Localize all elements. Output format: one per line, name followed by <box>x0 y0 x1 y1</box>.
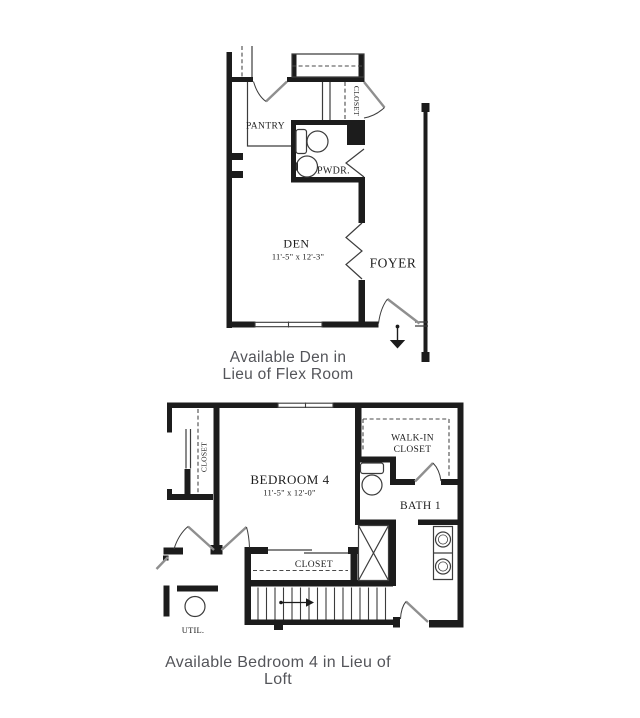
den-plan-caption: Available Den in Lieu of Flex Room <box>214 350 362 383</box>
den-walls <box>227 52 430 362</box>
toilet-icon-bath1 <box>361 463 384 495</box>
den-caption-line2: Lieu of Flex Room <box>214 367 362 384</box>
pantry-label: PANTRY <box>246 122 285 132</box>
den-door-arcs <box>254 82 388 324</box>
den-door-leaves <box>266 82 420 324</box>
bedroom4-plan-caption: Available Bedroom 4 in Lieu of Loft <box>156 654 400 688</box>
walkin-closet-label-line2: CLOSET <box>394 445 432 455</box>
stairs <box>258 588 386 620</box>
den-dimensions: 11'-5" x 12'-3" <box>272 252 324 262</box>
bedroom4-plan: CLOSET BEDROOM 4 11'-5" x 12'-0" WALK-IN… <box>157 403 464 636</box>
water-heater-icon <box>185 597 205 617</box>
den-caption-line1: Available Den in <box>214 350 362 367</box>
utility-label: UTIL. <box>182 625 204 635</box>
closet-bottom-label: CLOSET <box>295 560 333 570</box>
den-dashed-lines <box>242 46 364 120</box>
bedroom4-label: BEDROOM 4 <box>250 472 329 487</box>
bedroom4-window <box>278 403 333 409</box>
foyer-label: FOYER <box>370 256 417 271</box>
den-label: DEN <box>283 237 309 251</box>
den-plan: PANTRY CLOSET PWDR. DEN 11'-5" x 12'-3" … <box>227 46 430 362</box>
bedroom4-closet-left-label: CLOSET <box>200 442 209 472</box>
powder-label: PWDR. <box>317 166 350 177</box>
bath1-label: BATH 1 <box>400 500 441 512</box>
bedroom4-dimensions: 11'-5" x 12'-0" <box>263 488 315 498</box>
den-closet-label: CLOSET <box>352 86 361 116</box>
entry-arrow-icon <box>390 325 405 349</box>
walkin-closet-label-line1: WALK-IN <box>391 434 434 444</box>
den-window <box>255 322 322 328</box>
toilet-icon <box>296 130 328 154</box>
den-thin-lines <box>248 46 429 326</box>
sink-icon <box>297 156 318 177</box>
floorplan-page: PANTRY CLOSET PWDR. DEN 11'-5" x 12'-3" … <box>0 0 640 718</box>
